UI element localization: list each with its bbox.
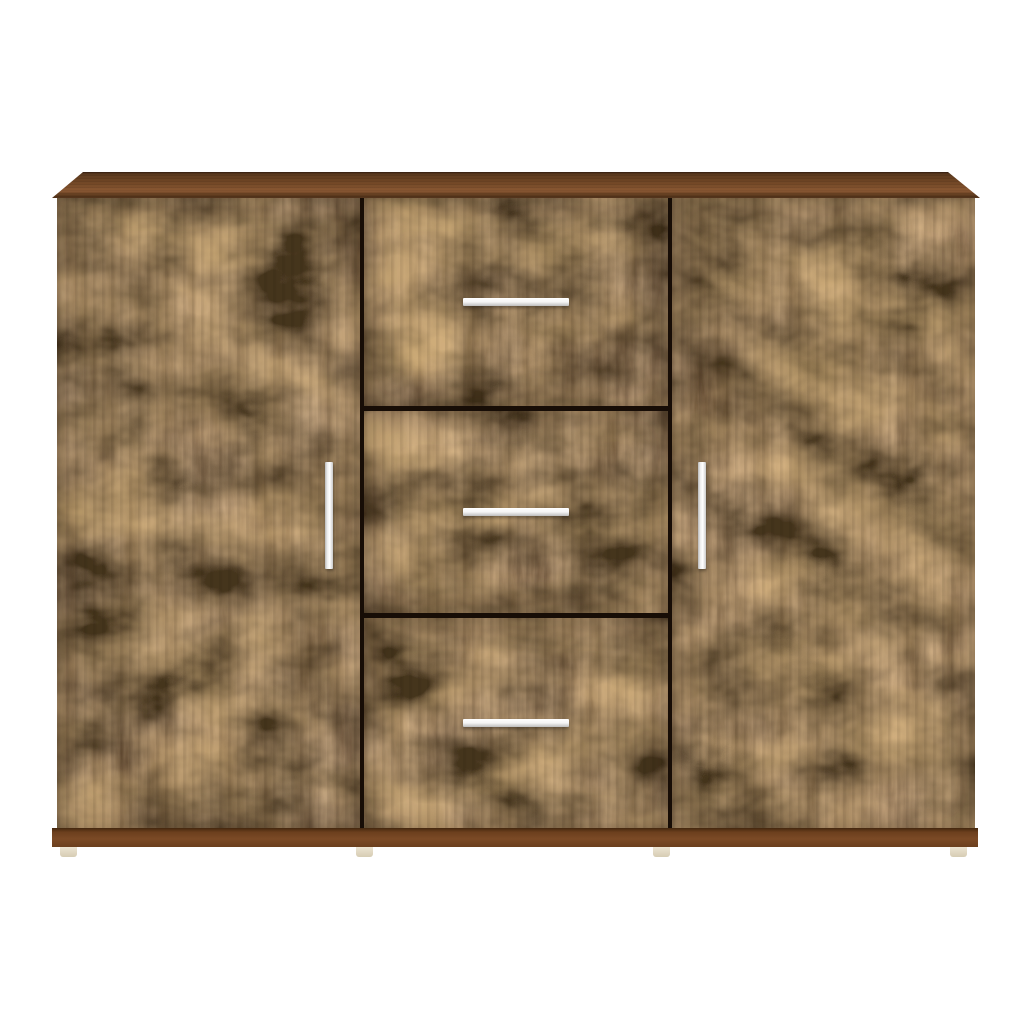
cabinet-body: [57, 198, 975, 828]
drawer-stack: [364, 198, 668, 828]
left-door: [57, 198, 360, 828]
product-photo-canvas: [0, 0, 1024, 1024]
cabinet-plinth: [52, 828, 978, 847]
cabinet-foot-mid-left: [356, 847, 373, 857]
drawer-middle-handle: [463, 508, 569, 516]
drawer-top: [364, 198, 668, 406]
left-door-handle: [325, 462, 333, 569]
cabinet-foot-right: [950, 847, 967, 857]
drawer-top-handle: [463, 298, 569, 306]
drawer-middle: [364, 411, 668, 613]
left-door-grain-overlay: [57, 198, 360, 828]
right-door-handle: [698, 462, 706, 569]
right-door-grain-overlay: [672, 198, 975, 828]
sideboard-cabinet: [0, 0, 1024, 1024]
drawer-bottom-handle: [463, 719, 569, 727]
drawer-bottom: [364, 618, 668, 828]
cabinet-top-panel: [52, 172, 980, 198]
cabinet-foot-mid-right: [653, 847, 670, 857]
cabinet-foot-left: [60, 847, 77, 857]
right-door: [672, 198, 975, 828]
